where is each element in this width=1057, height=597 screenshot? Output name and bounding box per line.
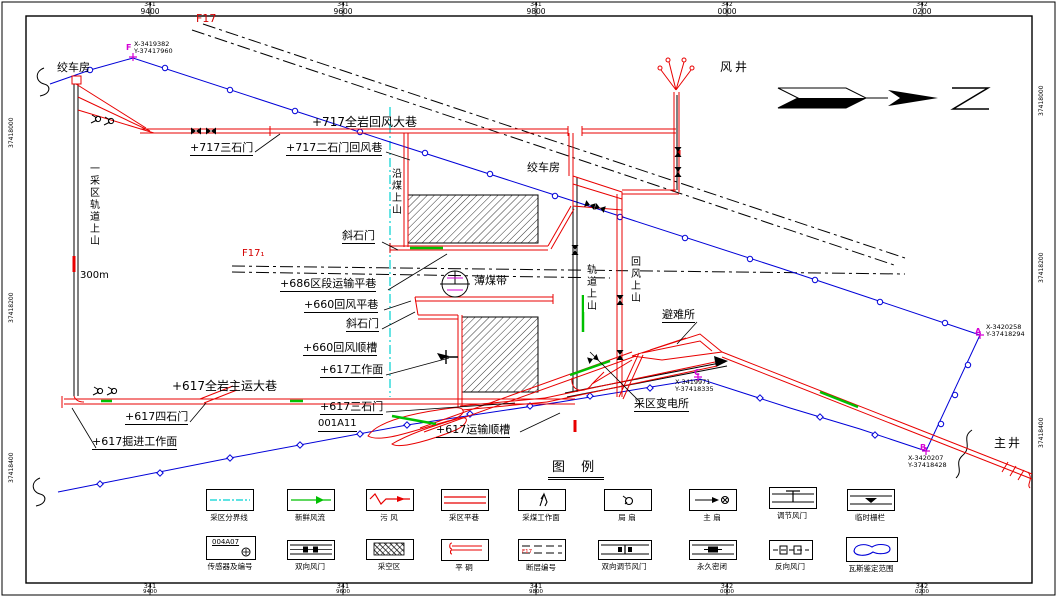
legend-box-gas-range [846, 537, 898, 562]
point-b-y: Y-37418428 [908, 462, 947, 469]
two-way-door-icon [288, 541, 334, 559]
district-boundary-icon [207, 490, 253, 510]
main-haulage-617-label: +617全岩主运大巷 [172, 380, 277, 393]
legend-label: 采煤工作面 [522, 512, 560, 523]
district1-rail-length: 300m [80, 271, 109, 282]
grid-tick: 3419800 [526, 2, 545, 16]
grid-tick: 37418400 [8, 452, 15, 483]
legend-box-seal [689, 540, 737, 560]
permanent-seal-icon [690, 541, 736, 559]
return-gate-660-label: +660回风顺槽 [303, 342, 377, 356]
legend-box-foul-air [366, 489, 414, 511]
legend-label: 双向调节风门 [602, 561, 647, 572]
legend-box-coal-face [518, 489, 566, 511]
legend-box-sensor: 004A07 [206, 536, 256, 560]
return-rise-label: 回风上山 [628, 256, 639, 304]
ventilation-symbols [91, 115, 682, 395]
crosscut3-617-label: +617三石门 [320, 401, 383, 415]
regulator-icon [770, 488, 816, 508]
legend-box-local-fan [604, 489, 652, 511]
legend-box-adit [441, 539, 489, 561]
face-617-label: +617工作面 [320, 364, 383, 378]
grid-tick: 37418200 [1038, 252, 1045, 283]
goaf-block-upper [408, 195, 538, 243]
legend-box-district-roadway [441, 489, 489, 511]
fresh-air-icon [288, 490, 334, 510]
point-c-tag: C [694, 369, 700, 377]
rail-rise-label: 轨道上山 [584, 264, 595, 312]
yanmei-rise-label: 沿煤上山 [389, 168, 400, 216]
temp-fence-icon [848, 490, 894, 510]
grid-tick: 3419400 [143, 583, 157, 595]
goaf-icon [367, 540, 413, 559]
thin-coal-label: 薄煤带 [474, 275, 507, 287]
transport-686-label: +686区段运输平巷 [280, 278, 376, 292]
district-roadway-icon [442, 490, 488, 510]
main-shaft-label: 主井 [994, 437, 1022, 450]
grid-tick: 3420200 [912, 2, 931, 16]
winch-house-1-label: 绞车房 [57, 62, 90, 74]
point-c-coords: X-3419971 Y-37418335 [675, 379, 714, 393]
point-c-y: Y-37418335 [675, 386, 714, 393]
grid-tick: 3420200 [915, 583, 929, 595]
legend-label: 调节风门 [777, 510, 807, 521]
grid-tick: 3419400 [140, 2, 159, 16]
fault-code: F17 [522, 549, 532, 555]
legend-label: 局 扇 [618, 512, 635, 523]
legend-box-temp-fence [847, 489, 895, 511]
legend-label: 污 风 [380, 512, 397, 523]
legend-box-fresh-air [287, 489, 335, 511]
code-001a11-label: 001A11 [318, 419, 357, 432]
legend-box-goaf [366, 539, 414, 560]
local-fan-icon [605, 490, 651, 510]
return-717-label: +717全岩回风大巷 [312, 116, 417, 129]
grid-tick: 37418000 [1038, 85, 1045, 116]
leader-lines [72, 134, 697, 448]
grid-tick: 3420000 [717, 2, 736, 16]
legend-box-two-way-door [287, 540, 335, 560]
gas-range-icon [847, 538, 897, 561]
grid-tick: 37418200 [8, 292, 15, 323]
legend-label: 永久密闭 [697, 561, 727, 572]
mine-ventilation-map: 3419400 3419600 3419800 3420000 3420200 … [0, 0, 1057, 597]
grid-tick: 3419600 [336, 583, 350, 595]
district1-rail-rise-label: 一采区轨道上山 [87, 163, 98, 247]
coal-face-icon [519, 490, 565, 510]
point-f-tag: F [126, 44, 131, 52]
substation-arrow [714, 356, 728, 367]
substation-label: 采区变电所 [634, 398, 689, 412]
point-a-y: Y-37418294 [986, 331, 1025, 338]
winch-house-2-label: 绞车房 [527, 162, 560, 174]
legend-label: 平 硐 [455, 562, 472, 573]
crosscut2-717-label: +717二石门回风巷 [286, 142, 382, 156]
goaf-block-lower [462, 317, 538, 392]
incline-crosscut-1-label: 斜石门 [342, 230, 375, 244]
main-fan-icon [690, 490, 736, 510]
point-a-tag: A [975, 328, 981, 336]
legend-label: 采空区 [378, 561, 401, 572]
point-f-coords: X-3419382 Y-37417960 [134, 41, 173, 55]
grid-tick: 3419600 [333, 2, 352, 16]
legend-box-regulator [769, 487, 817, 509]
legend-label: 采区平巷 [449, 512, 479, 523]
rail-roadways-black [74, 84, 727, 397]
legend-label: 双向风门 [295, 561, 325, 572]
crosscut3-717-label: +717三石门 [190, 142, 253, 156]
reverse-door-icon [770, 541, 812, 559]
grid-tick: 3420000 [720, 583, 734, 595]
north-arrow [778, 88, 989, 109]
crosscut4-617-label: +617四石门 [125, 411, 188, 425]
legend-label: 断层编号 [526, 562, 556, 573]
point-b-tag: B [920, 444, 926, 452]
legend-label: 传感器及编号 [208, 561, 253, 572]
legend-box-boundary [206, 489, 254, 511]
incline-crosscut-2-label: 斜石门 [346, 318, 379, 332]
air-shaft-label: 风井 [720, 61, 750, 74]
legend-label: 采区分界线 [210, 512, 248, 523]
foul-air-icon [367, 490, 413, 510]
point-a-coords: X-3420258 Y-37418294 [986, 324, 1025, 338]
legend-box-main-fan [689, 489, 737, 511]
legend-label: 反向风门 [775, 561, 805, 572]
transport-gate-617-label: +617运输顺槽 [436, 424, 510, 438]
two-way-regulator-icon [599, 541, 651, 559]
survey-traverse [50, 58, 980, 492]
legend-label: 新鲜风流 [295, 512, 325, 523]
point-f-y: Y-37417960 [134, 48, 173, 55]
grid-tick: 37418000 [8, 117, 15, 148]
grid-tick: 37418400 [1038, 417, 1045, 448]
adit-icon [442, 540, 488, 560]
grid-tick: 3419800 [529, 583, 543, 595]
roadways-red [62, 58, 1032, 488]
legend-label: 临时栅栏 [855, 512, 885, 523]
thin-coal-symbol [440, 271, 470, 297]
fault-f17-1-label: F17₁ [242, 249, 265, 260]
return-level-660-label: +660回风平巷 [304, 299, 378, 313]
heading-face-617-label: +617掘进工作面 [92, 436, 177, 450]
legend-box-two-way-regulator [598, 540, 652, 560]
legend-label: 瓦斯鉴定范围 [849, 563, 894, 574]
point-b-coords: X-3420207 Y-37418428 [908, 455, 947, 469]
legend-label: 主 扇 [703, 512, 720, 523]
refuge-label: 避难所 [662, 309, 695, 323]
legend-box-reverse-door [769, 540, 813, 560]
legend-title: 图 例 [548, 461, 604, 475]
legend-box-fault-no: F17 [518, 539, 566, 561]
sensor-code: 004A07 [212, 538, 239, 546]
fault-f17-label: F17 [196, 13, 216, 25]
